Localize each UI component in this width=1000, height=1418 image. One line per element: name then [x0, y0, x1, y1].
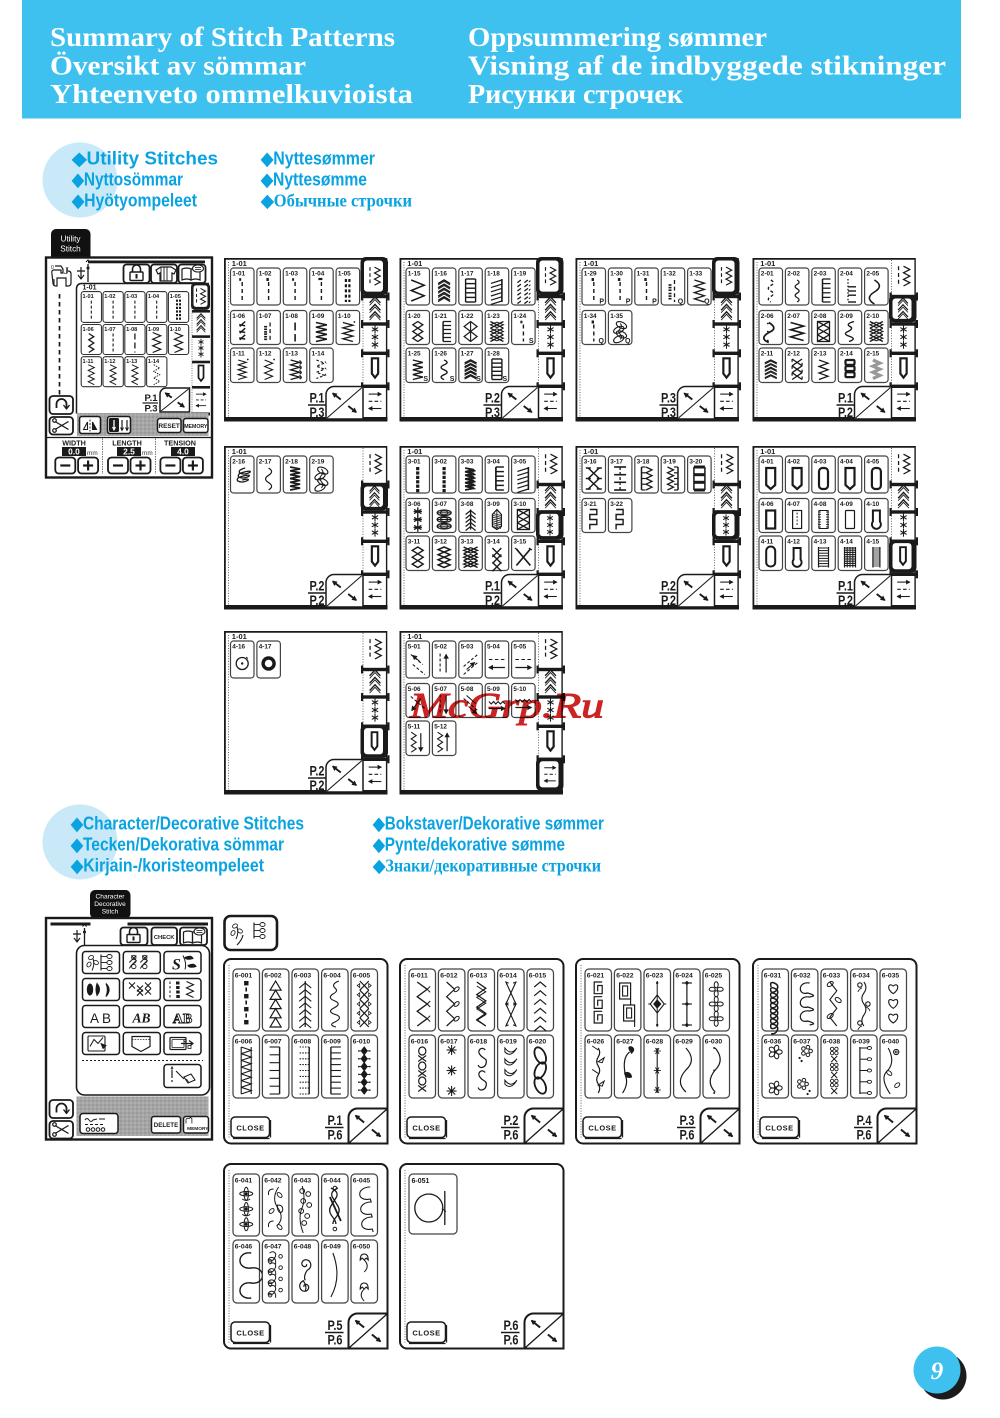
svg-text:RESET: RESET	[159, 423, 180, 430]
svg-text:6-026: 6-026	[587, 1039, 605, 1046]
svg-text:6-016: 6-016	[411, 1039, 429, 1046]
svg-text:1-27: 1-27	[461, 351, 474, 358]
svg-text:1-01: 1-01	[407, 447, 422, 456]
svg-text:1-26: 1-26	[434, 351, 447, 358]
svg-text:4-06: 4-06	[761, 501, 774, 508]
svg-text:3-14: 3-14	[487, 539, 500, 546]
svg-text:P.2: P.2	[504, 1113, 519, 1128]
svg-text:mm: mm	[87, 450, 98, 457]
svg-text:1-21: 1-21	[434, 313, 447, 320]
svg-text:1-10: 1-10	[170, 327, 181, 333]
svg-text:2-05: 2-05	[866, 271, 879, 278]
svg-text:6-033: 6-033	[823, 973, 841, 980]
svg-text:6-034: 6-034	[852, 973, 870, 980]
svg-text:4-16: 4-16	[232, 644, 245, 651]
svg-text:P.3: P.3	[144, 404, 157, 415]
svg-text:◆Обычные строчки: ◆Обычные строчки	[260, 191, 412, 211]
svg-text:1-03: 1-03	[126, 294, 137, 300]
svg-text:1-25: 1-25	[408, 351, 421, 358]
svg-text:Visning af de indbyggede stikn: Visning af de indbyggede stikninger	[468, 50, 946, 81]
svg-text:6-042: 6-042	[264, 1178, 282, 1185]
svg-text:6-030: 6-030	[705, 1039, 723, 1046]
svg-text:S: S	[476, 376, 481, 383]
svg-text:P.3: P.3	[680, 1113, 695, 1128]
svg-text:P: P	[626, 299, 631, 306]
svg-text:6-021: 6-021	[587, 973, 605, 980]
svg-text:6-009: 6-009	[323, 1039, 341, 1046]
svg-text:6-043: 6-043	[294, 1178, 312, 1185]
svg-text:1-01: 1-01	[232, 447, 247, 456]
svg-text:1-09: 1-09	[148, 327, 159, 333]
svg-text:1-22: 1-22	[461, 313, 474, 320]
svg-text:1-05: 1-05	[170, 294, 181, 300]
svg-text:P.2: P.2	[310, 778, 325, 793]
svg-text:2-02: 2-02	[787, 271, 800, 278]
svg-text:P.6: P.6	[328, 1333, 343, 1348]
svg-text:1-05: 1-05	[338, 271, 351, 278]
svg-text:◆Character/Decorative Stitches: ◆Character/Decorative Stitches	[70, 814, 304, 834]
svg-text:1-20: 1-20	[408, 313, 421, 320]
svg-text:P.4: P.4	[857, 1113, 872, 1128]
svg-text:P.3: P.3	[661, 405, 676, 420]
svg-text:2-12: 2-12	[787, 351, 800, 358]
svg-text:0.0: 0.0	[68, 447, 80, 457]
svg-text:◆Nyttesømme: ◆Nyttesømme	[260, 170, 367, 190]
svg-text:1-01: 1-01	[232, 271, 245, 278]
svg-text:◆Tecken/Dekorativa sömmar: ◆Tecken/Dekorativa sömmar	[70, 835, 284, 855]
svg-text:P.1: P.1	[485, 579, 500, 594]
svg-text:1-15: 1-15	[408, 271, 421, 278]
svg-text:P.6: P.6	[857, 1128, 872, 1143]
svg-text:CLOSE: CLOSE	[412, 1329, 440, 1338]
svg-text:Stitch: Stitch	[102, 909, 119, 916]
svg-text:4-12: 4-12	[787, 539, 800, 546]
svg-text:2-06: 2-06	[761, 313, 774, 320]
svg-text:6-029: 6-029	[675, 1039, 693, 1046]
svg-text:S: S	[450, 376, 455, 383]
svg-text:3-20: 3-20	[689, 459, 702, 466]
svg-text:Q: Q	[625, 338, 631, 345]
svg-text:1-07: 1-07	[259, 313, 272, 320]
svg-text:4-14: 4-14	[840, 539, 853, 546]
svg-text:4-02: 4-02	[787, 459, 800, 466]
svg-text:6-019: 6-019	[499, 1039, 517, 1046]
svg-text:6-032: 6-032	[793, 973, 811, 980]
svg-text:3-19: 3-19	[663, 459, 676, 466]
svg-text:1-29: 1-29	[584, 271, 597, 278]
svg-text:AB: AB	[131, 1011, 150, 1026]
svg-text:2-03: 2-03	[814, 271, 827, 278]
svg-text:5-04: 5-04	[487, 644, 500, 651]
svg-text:P.2: P.2	[838, 593, 853, 608]
svg-text:4-13: 4-13	[814, 539, 827, 546]
svg-text:6-047: 6-047	[264, 1244, 282, 1251]
svg-text:2-13: 2-13	[814, 351, 827, 358]
svg-text:Decorative: Decorative	[94, 901, 126, 908]
svg-text:6-041: 6-041	[235, 1178, 253, 1185]
svg-text:1-30: 1-30	[610, 271, 623, 278]
svg-text:3-17: 3-17	[610, 459, 623, 466]
svg-text:6-038: 6-038	[823, 1039, 841, 1046]
svg-text:2-01: 2-01	[761, 271, 774, 278]
svg-text:3-16: 3-16	[584, 459, 597, 466]
svg-text:Översikt av sömmar: Översikt av sömmar	[50, 50, 306, 81]
svg-text:P.2: P.2	[661, 593, 676, 608]
svg-text:6-049: 6-049	[323, 1244, 341, 1251]
svg-text:1-06: 1-06	[232, 313, 245, 320]
svg-text:1-04: 1-04	[312, 271, 325, 278]
svg-text:3-12: 3-12	[434, 539, 447, 546]
svg-text:4-03: 4-03	[814, 459, 827, 466]
svg-text:1-01: 1-01	[83, 294, 94, 300]
svg-text:5-02: 5-02	[434, 644, 447, 651]
svg-text:3-10: 3-10	[513, 501, 526, 508]
svg-text:Summary of Stitch Patterns: Summary of Stitch Patterns	[50, 21, 395, 52]
svg-text:P.3: P.3	[485, 405, 500, 420]
svg-text:1-01: 1-01	[583, 259, 598, 268]
svg-text:1-01: 1-01	[760, 447, 775, 456]
svg-text:3-01: 3-01	[408, 459, 421, 466]
svg-text:P.1: P.1	[144, 393, 158, 404]
svg-text:6-031: 6-031	[764, 973, 782, 980]
svg-text:1-07: 1-07	[104, 327, 115, 333]
svg-text:6-007: 6-007	[264, 1039, 282, 1046]
svg-text:6-020: 6-020	[529, 1039, 547, 1046]
svg-text:4-10: 4-10	[866, 501, 879, 508]
svg-text:1-18: 1-18	[487, 271, 500, 278]
svg-text:◆Знаки/декоративные строчки: ◆Знаки/декоративные строчки	[372, 856, 601, 876]
svg-text:6-051: 6-051	[412, 1178, 430, 1185]
svg-text:2-09: 2-09	[840, 313, 853, 320]
svg-text:P.1: P.1	[310, 391, 325, 406]
svg-text:CLOSE: CLOSE	[588, 1124, 616, 1133]
svg-text:4-08: 4-08	[814, 501, 827, 508]
svg-text:1-09: 1-09	[312, 313, 325, 320]
svg-text:6-008: 6-008	[294, 1039, 312, 1046]
svg-text:6-027: 6-027	[616, 1039, 634, 1046]
svg-text:S: S	[503, 376, 508, 383]
svg-text:McGrp.Ru: McGrp.Ru	[409, 686, 604, 726]
svg-text:1-01: 1-01	[583, 447, 598, 456]
svg-text:3-04: 3-04	[487, 459, 500, 466]
svg-text:P: P	[652, 299, 657, 306]
svg-text:P.6: P.6	[504, 1128, 519, 1143]
svg-text:◆Nyttosömmar: ◆Nyttosömmar	[71, 170, 183, 190]
svg-text:2-18: 2-18	[285, 459, 298, 466]
svg-text:3-02: 3-02	[434, 459, 447, 466]
svg-text:1-13: 1-13	[285, 351, 298, 358]
svg-text:6-013: 6-013	[470, 973, 488, 980]
svg-text:◆Pynte/dekorative sømme: ◆Pynte/dekorative sømme	[372, 835, 565, 855]
svg-text:1-01: 1-01	[232, 259, 247, 268]
svg-text:1-03: 1-03	[285, 271, 298, 278]
svg-text:1-33: 1-33	[689, 271, 702, 278]
svg-text:Utility: Utility	[60, 235, 81, 244]
svg-text:P.2: P.2	[310, 593, 325, 608]
svg-text:Q: Q	[704, 299, 710, 306]
svg-text:3-13: 3-13	[461, 539, 474, 546]
svg-text:1-13: 1-13	[126, 359, 137, 365]
svg-text:1-14: 1-14	[148, 359, 160, 365]
svg-text:6-037: 6-037	[793, 1039, 811, 1046]
svg-text:1-11: 1-11	[232, 351, 245, 358]
svg-text:1-28: 1-28	[487, 351, 500, 358]
svg-text:Q: Q	[678, 299, 684, 306]
svg-text:CLOSE: CLOSE	[236, 1329, 264, 1338]
svg-text:6-040: 6-040	[882, 1039, 900, 1046]
svg-text:1-01: 1-01	[407, 632, 422, 641]
svg-text:A B: A B	[90, 1011, 111, 1026]
svg-text:◆Utility Stitches: ◆Utility Stitches	[71, 149, 218, 169]
svg-text:6-044: 6-044	[323, 1178, 341, 1185]
svg-text:MEMORY: MEMORY	[184, 424, 208, 430]
svg-text:1-34: 1-34	[584, 313, 597, 320]
svg-text:2-15: 2-15	[866, 351, 879, 358]
svg-text:Character: Character	[96, 894, 126, 901]
svg-text:9: 9	[931, 1358, 944, 1385]
svg-text:1-16: 1-16	[434, 271, 447, 278]
svg-text:P.2: P.2	[485, 391, 500, 406]
svg-text:1-23: 1-23	[487, 313, 500, 320]
svg-text:3-15: 3-15	[513, 539, 526, 546]
svg-text:MEMORY: MEMORY	[187, 1126, 209, 1132]
svg-text:6-018: 6-018	[470, 1039, 488, 1046]
svg-text:S: S	[423, 376, 428, 383]
svg-text:P.1: P.1	[838, 579, 853, 594]
svg-text:4-07: 4-07	[787, 501, 800, 508]
svg-text:P.2: P.2	[485, 593, 500, 608]
svg-text:5-01: 5-01	[408, 644, 421, 651]
svg-text:2-04: 2-04	[840, 271, 853, 278]
svg-text:AB: AB	[173, 1012, 192, 1027]
svg-text:1-17: 1-17	[461, 271, 474, 278]
svg-text:6-004: 6-004	[323, 973, 341, 980]
svg-text:4-04: 4-04	[840, 459, 853, 466]
svg-text:2-16: 2-16	[232, 459, 245, 466]
svg-text:6-014: 6-014	[499, 973, 517, 980]
svg-text:2-19: 2-19	[312, 459, 325, 466]
svg-text:P.6: P.6	[504, 1318, 519, 1333]
svg-text:P.3: P.3	[310, 405, 325, 420]
svg-text:1-10: 1-10	[338, 313, 351, 320]
svg-text:P.6: P.6	[680, 1128, 695, 1143]
svg-text:2-17: 2-17	[259, 459, 272, 466]
svg-text:6-022: 6-022	[616, 973, 634, 980]
svg-text:1-08: 1-08	[285, 313, 298, 320]
svg-text:1-12: 1-12	[259, 351, 272, 358]
svg-text:1-06: 1-06	[83, 327, 94, 333]
svg-text:1-01: 1-01	[83, 285, 97, 292]
svg-text:3-06: 3-06	[408, 501, 421, 508]
svg-text:2-08: 2-08	[814, 313, 827, 320]
svg-text:P.6: P.6	[328, 1128, 343, 1143]
svg-text:6-002: 6-002	[264, 973, 282, 980]
svg-text:Yhteenveto ommelkuvioista: Yhteenveto ommelkuvioista	[50, 78, 413, 109]
svg-text:6-035: 6-035	[882, 973, 900, 980]
svg-text:6-028: 6-028	[646, 1039, 664, 1046]
svg-text:CLOSE: CLOSE	[236, 1124, 264, 1133]
svg-text:mm: mm	[142, 450, 153, 457]
svg-text:1-19: 1-19	[513, 271, 526, 278]
svg-text:6-003: 6-003	[294, 973, 312, 980]
svg-text:6-015: 6-015	[529, 973, 547, 980]
svg-text:CHECK: CHECK	[154, 935, 175, 941]
svg-text:3-18: 3-18	[637, 459, 650, 466]
svg-text:◆Hyötyompeleet: ◆Hyötyompeleet	[71, 191, 197, 211]
svg-text:Oppsummering sømmer: Oppsummering sømmer	[468, 21, 767, 52]
svg-text:6-046: 6-046	[235, 1244, 253, 1251]
svg-text:3-11: 3-11	[408, 539, 421, 546]
svg-text:◆Nyttesømmer: ◆Nyttesømmer	[260, 149, 375, 169]
svg-text:P.2: P.2	[310, 764, 325, 779]
svg-text:DELETE: DELETE	[154, 1122, 178, 1129]
svg-text:4-01: 4-01	[761, 459, 774, 466]
svg-text:1-01: 1-01	[760, 259, 775, 268]
svg-text:3-09: 3-09	[487, 501, 500, 508]
svg-text:P.3: P.3	[661, 391, 676, 406]
svg-text:CLOSE: CLOSE	[412, 1124, 440, 1133]
svg-text:4-11: 4-11	[761, 539, 774, 546]
svg-text:1-01: 1-01	[407, 259, 422, 268]
svg-text:Рисунки строчек: Рисунки строчек	[468, 78, 683, 109]
svg-text:3-08: 3-08	[461, 501, 474, 508]
svg-text:Stitch: Stitch	[60, 245, 81, 254]
svg-text:6-036: 6-036	[764, 1039, 782, 1046]
svg-text:CLOSE: CLOSE	[765, 1124, 793, 1133]
svg-text:P.6: P.6	[504, 1333, 519, 1348]
svg-text:6-023: 6-023	[646, 973, 664, 980]
svg-text:6-012: 6-012	[440, 973, 458, 980]
svg-text:2-11: 2-11	[761, 351, 774, 358]
svg-text:1-14: 1-14	[312, 351, 325, 358]
svg-text:4-09: 4-09	[840, 501, 853, 508]
svg-text:4-17: 4-17	[259, 644, 272, 651]
svg-text:6-045: 6-045	[353, 1178, 371, 1185]
svg-text:5-05: 5-05	[513, 644, 526, 651]
svg-text:6-025: 6-025	[705, 973, 723, 980]
svg-text:2.5: 2.5	[123, 447, 135, 457]
svg-text:6-017: 6-017	[440, 1039, 458, 1046]
svg-text:2-14: 2-14	[840, 351, 853, 358]
svg-text:1-02: 1-02	[104, 294, 115, 300]
svg-text:6-005: 6-005	[353, 973, 371, 980]
svg-text:3-22: 3-22	[610, 501, 623, 508]
svg-text:5-03: 5-03	[461, 644, 474, 651]
svg-text:Q: Q	[599, 338, 605, 345]
svg-text:1-35: 1-35	[610, 313, 623, 320]
svg-text:4-05: 4-05	[866, 459, 879, 466]
svg-text:1-11: 1-11	[83, 359, 94, 365]
svg-text:6-050: 6-050	[353, 1244, 371, 1251]
svg-text:S: S	[529, 338, 534, 345]
svg-text:S: S	[172, 957, 181, 974]
svg-text:6-039: 6-039	[852, 1039, 870, 1046]
svg-text:P: P	[599, 299, 604, 306]
svg-text:1-32: 1-32	[663, 271, 676, 278]
svg-text:1-04: 1-04	[148, 294, 160, 300]
svg-text:6-024: 6-024	[675, 973, 693, 980]
svg-text:3-05: 3-05	[513, 459, 526, 466]
svg-text:P.2: P.2	[310, 579, 325, 594]
svg-text:6-011: 6-011	[411, 973, 428, 980]
svg-text:◆Bokstaver/Dekorative sømmer: ◆Bokstaver/Dekorative sømmer	[372, 814, 604, 834]
svg-text:3-07: 3-07	[434, 501, 447, 508]
svg-text:1-08: 1-08	[126, 327, 137, 333]
svg-text:6-006: 6-006	[235, 1039, 253, 1046]
svg-text:P.5: P.5	[328, 1318, 343, 1333]
svg-text:1-02: 1-02	[259, 271, 272, 278]
svg-text:6-048: 6-048	[294, 1244, 312, 1251]
svg-text:3-03: 3-03	[461, 459, 474, 466]
svg-text:◆Kirjain-/koristeompeleet: ◆Kirjain-/koristeompeleet	[70, 856, 264, 876]
svg-text:1-24: 1-24	[513, 313, 526, 320]
svg-text:3-21: 3-21	[584, 501, 597, 508]
svg-text:P.2: P.2	[661, 579, 676, 594]
svg-text:J: J	[64, 267, 69, 277]
svg-text:P.1: P.1	[328, 1113, 343, 1128]
svg-text:6-001: 6-001	[235, 973, 253, 980]
svg-text:4.0: 4.0	[177, 447, 189, 457]
svg-text:P.1: P.1	[838, 391, 853, 406]
svg-text:1-01: 1-01	[232, 632, 247, 641]
svg-text:2-10: 2-10	[866, 313, 879, 320]
svg-text:6-010: 6-010	[353, 1039, 371, 1046]
svg-text:1-12: 1-12	[104, 359, 115, 365]
svg-text:2-07: 2-07	[787, 313, 800, 320]
svg-text:P.2: P.2	[838, 405, 853, 420]
svg-text:4-15: 4-15	[866, 539, 879, 546]
svg-text:1-31: 1-31	[637, 271, 650, 278]
